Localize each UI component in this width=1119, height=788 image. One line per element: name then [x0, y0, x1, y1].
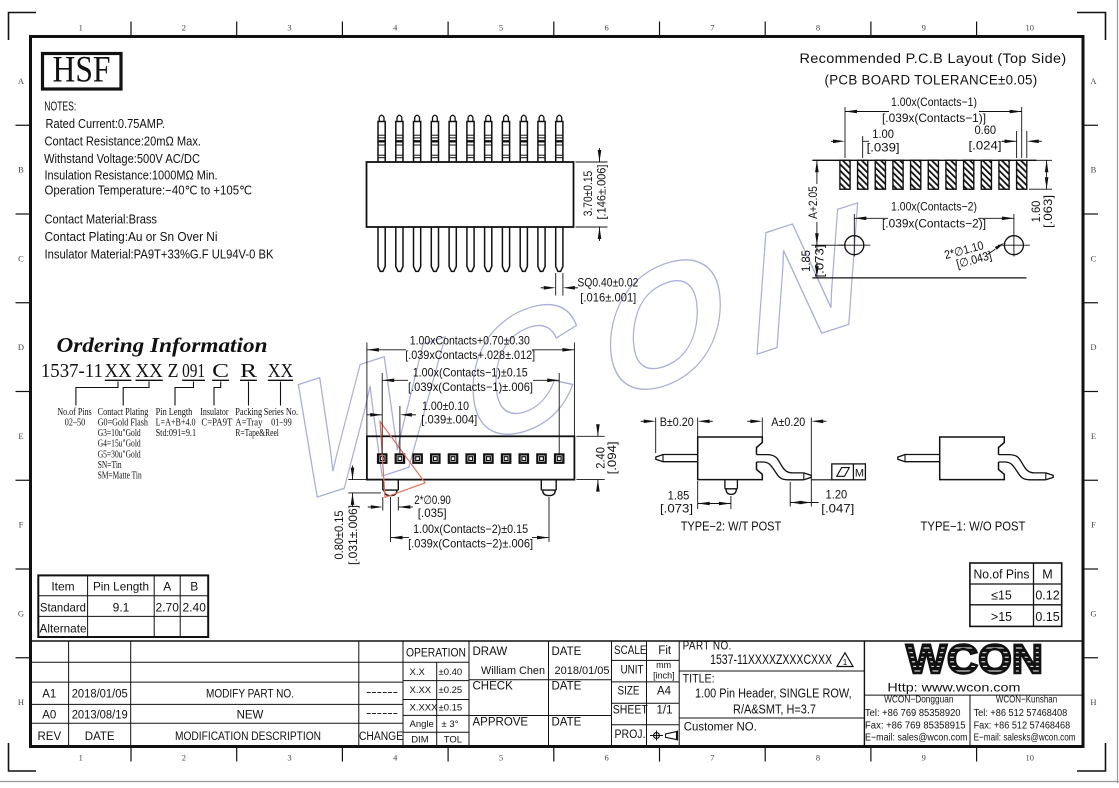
svg-text:DATE: DATE: [552, 681, 582, 693]
svg-text:2.40: 2.40: [183, 601, 207, 615]
svg-text:X.X: X.X: [410, 667, 426, 678]
svg-text:OPERATION: OPERATION: [406, 648, 466, 660]
svg-text:Contact Material:Brass: Contact Material:Brass: [45, 213, 158, 227]
svg-text:±0.40: ±0.40: [439, 667, 463, 678]
svg-text:G: G: [18, 608, 24, 618]
svg-text:Contact Plating:Au or Sn Over: Contact Plating:Au or Sn Over Ni: [45, 230, 218, 244]
svg-text:1/1: 1/1: [657, 705, 673, 717]
svg-text:R: R: [240, 360, 258, 382]
svg-text:1.00x(Contacts−1)±0.15: 1.00x(Contacts−1)±0.15: [413, 365, 528, 379]
svg-text:E: E: [18, 431, 23, 441]
svg-text:TITLE:: TITLE:: [683, 674, 715, 686]
svg-text:2018/01/05: 2018/01/05: [72, 689, 128, 701]
svg-text:H: H: [18, 697, 24, 707]
svg-text:[.039x(Contacts−2)]: [.039x(Contacts−2)]: [882, 216, 986, 230]
svg-text:6: 6: [605, 23, 609, 33]
svg-text:HSF: HSF: [53, 50, 111, 91]
svg-text:UNIT: UNIT: [621, 664, 644, 676]
svg-text:mm: mm: [656, 660, 671, 670]
svg-text:[.063]: [.063]: [1041, 195, 1055, 228]
svg-text:A+2.05: A+2.05: [806, 186, 820, 219]
svg-text:MODIFY PART NO.: MODIFY PART NO.: [206, 689, 294, 701]
svg-text:091: 091: [182, 360, 205, 382]
svg-text:Insulator Material:PA9T+33%G.F: Insulator Material:PA9T+33%G.F UL94V-0 B…: [45, 248, 275, 262]
svg-text:[.039xContacts+.028±.012]: [.039xContacts+.028±.012]: [405, 348, 535, 362]
svg-text:Alternate: Alternate: [40, 622, 87, 636]
svg-text:8: 8: [816, 753, 820, 763]
svg-text:[.073]: [.073]: [813, 245, 827, 278]
svg-text:------: ------: [366, 708, 398, 720]
svg-text:SCALE: SCALE: [614, 645, 647, 657]
svg-text:E: E: [1091, 431, 1096, 441]
svg-text:Tel: +86 769 85358920: Tel: +86 769 85358920: [865, 708, 961, 719]
svg-text:DATE: DATE: [552, 646, 582, 658]
svg-text:XX: XX: [105, 360, 132, 382]
svg-text:CHANGE: CHANGE: [359, 731, 403, 743]
svg-text:XX: XX: [268, 360, 294, 382]
svg-text:Fit: Fit: [658, 645, 672, 657]
svg-text:3: 3: [287, 753, 291, 763]
svg-text:REV: REV: [37, 731, 61, 743]
svg-text:1.00x(Contacts−2)±0.15: 1.00x(Contacts−2)±0.15: [413, 522, 528, 536]
svg-text:[.039x(Contacts−1)]: [.039x(Contacts−1)]: [882, 111, 986, 125]
svg-text:Operation Temperature:−40℃ to: Operation Temperature:−40℃ to +105℃: [45, 184, 253, 198]
svg-text:1: 1: [79, 23, 83, 33]
svg-text:10: 10: [1026, 23, 1035, 33]
svg-text:A±0.20: A±0.20: [771, 415, 805, 429]
svg-text:B: B: [18, 165, 24, 175]
svg-text:1.20: 1.20: [826, 488, 848, 502]
svg-text:Contact Resistance:20mΩ Max.: Contact Resistance:20mΩ Max.: [45, 135, 202, 149]
svg-text:[.094]: [.094]: [605, 441, 619, 474]
svg-text:NEW: NEW: [237, 710, 264, 722]
svg-text:[.031±.006]: [.031±.006]: [346, 505, 360, 565]
svg-text:M: M: [855, 467, 864, 479]
svg-text:1: 1: [79, 753, 83, 763]
svg-text:DATE: DATE: [85, 731, 115, 743]
svg-text:01–99: 01–99: [271, 416, 292, 428]
svg-text:A4: A4: [657, 685, 672, 697]
svg-text:A: A: [18, 76, 25, 86]
svg-text:2018/01/05: 2018/01/05: [555, 665, 610, 677]
svg-text:No.of Pins: No.of Pins: [974, 568, 1030, 582]
svg-text:Withstand Voltage:500V AC/DC: Withstand Voltage:500V AC/DC: [44, 152, 200, 166]
svg-text:F: F: [1091, 520, 1096, 530]
svg-text:1537-11: 1537-11: [41, 360, 103, 382]
svg-text:H: H: [1090, 697, 1096, 707]
svg-text:C=PA9T: C=PA9T: [201, 416, 232, 428]
svg-text:2: 2: [182, 23, 186, 33]
svg-text:Item: Item: [51, 580, 74, 594]
svg-text:DRAW: DRAW: [473, 646, 508, 658]
svg-text:A0: A0: [42, 710, 56, 722]
svg-text:SHEET: SHEET: [613, 704, 648, 716]
svg-text:3.70±0.15: 3.70±0.15: [581, 170, 595, 216]
svg-text:[.035]: [.035]: [418, 506, 447, 520]
svg-text:9.1: 9.1: [113, 601, 130, 615]
svg-text:2.70: 2.70: [156, 601, 180, 615]
svg-text:M: M: [1042, 568, 1052, 582]
svg-text:1: 1: [843, 657, 848, 667]
svg-text:1.85: 1.85: [668, 489, 690, 503]
svg-text:TYPE−1: W/O POST: TYPE−1: W/O POST: [921, 520, 1026, 534]
svg-text:9: 9: [922, 23, 926, 33]
svg-text:Standard: Standard: [40, 601, 86, 615]
svg-text:10: 10: [1026, 753, 1035, 763]
svg-text:William Chen: William Chen: [481, 665, 545, 677]
svg-text:SIZE: SIZE: [618, 685, 640, 697]
svg-text:7: 7: [710, 753, 714, 763]
svg-text:0.12: 0.12: [1035, 589, 1059, 603]
svg-text:[.146±.006]: [.146±.006]: [595, 165, 609, 220]
svg-text:WCON−Kunshan: WCON−Kunshan: [996, 695, 1057, 706]
svg-text:G: G: [1090, 608, 1096, 618]
svg-text:±0.15: ±0.15: [439, 703, 463, 714]
svg-text:±0.25: ±0.25: [439, 685, 463, 696]
svg-text:2: 2: [182, 753, 186, 763]
svg-text:D: D: [1090, 342, 1096, 352]
svg-text:F: F: [19, 520, 24, 530]
svg-text:3: 3: [287, 23, 291, 33]
svg-text:[.073]: [.073]: [660, 502, 693, 516]
svg-text:Ordering Information: Ordering Information: [57, 333, 268, 357]
svg-text:≤15: ≤15: [991, 589, 1012, 603]
svg-text:XX: XX: [136, 360, 164, 382]
svg-text:MODIFICATION DESCRIPTION: MODIFICATION DESCRIPTION: [175, 731, 321, 743]
svg-text:0.15: 0.15: [1035, 610, 1059, 624]
svg-text:5: 5: [499, 23, 503, 33]
svg-text:Angle: Angle: [410, 719, 434, 730]
svg-text:NOTES:: NOTES:: [44, 100, 76, 114]
svg-text:E−mail: sales@wcon.com: E−mail: sales@wcon.com: [865, 732, 968, 743]
svg-text:Pin Length: Pin Length: [93, 580, 149, 594]
svg-text:R/A&SMT, H=3.7: R/A&SMT, H=3.7: [733, 702, 816, 717]
svg-text:A: A: [1090, 76, 1097, 86]
svg-text:WCON−Dongguan: WCON−Dongguan: [884, 695, 953, 706]
svg-text:02–50: 02–50: [65, 416, 86, 428]
svg-text:CHECK: CHECK: [473, 681, 514, 693]
svg-text:1537-11XXXXZXXXCXXX: 1537-11XXXXZXXXCXXX: [710, 651, 832, 667]
svg-text:------: ------: [366, 687, 398, 699]
svg-text:Fax: +86 512 57468468: Fax: +86 512 57468468: [974, 721, 1071, 732]
svg-text:TOL: TOL: [444, 734, 462, 745]
svg-text:1.00x(Contacts−1): 1.00x(Contacts−1): [891, 95, 977, 109]
svg-text:± 3°: ± 3°: [442, 719, 459, 730]
svg-text:Recommended P.C.B Layout (Top: Recommended P.C.B Layout (Top Side): [800, 51, 1067, 66]
svg-text:TYPE−2: W/T POST: TYPE−2: W/T POST: [681, 520, 782, 534]
svg-text:SM=Matte Tin: SM=Matte Tin: [98, 470, 142, 482]
svg-text:(PCB BOARD TOLERANCE±0.05): (PCB BOARD TOLERANCE±0.05): [825, 73, 1038, 88]
svg-text:Std:091=9.1: Std:091=9.1: [156, 427, 197, 439]
svg-text:DIM: DIM: [411, 734, 429, 745]
svg-text:C: C: [18, 253, 24, 263]
svg-text:[.047]: [.047]: [821, 502, 854, 516]
svg-text:Rated Current:0.75AMP.: Rated Current:0.75AMP.: [46, 117, 166, 131]
svg-text:Customer NO.: Customer NO.: [684, 721, 757, 733]
svg-text:APPROVE: APPROVE: [473, 716, 529, 728]
svg-text:1.00 Pin Header, SINGLE ROW,: 1.00 Pin Header, SINGLE ROW,: [695, 686, 852, 701]
svg-text:[inch]: [inch]: [653, 671, 675, 681]
svg-text:6: 6: [605, 753, 609, 763]
svg-text:Fax: +86 769 85358915: Fax: +86 769 85358915: [865, 721, 966, 732]
svg-text:C: C: [212, 360, 229, 382]
svg-text:A1: A1: [42, 689, 56, 701]
svg-text:B: B: [1091, 165, 1097, 175]
svg-text:DATE: DATE: [552, 716, 582, 728]
svg-text:1.00x(Contacts−2): 1.00x(Contacts−2): [891, 199, 977, 213]
svg-text:B: B: [190, 580, 198, 594]
svg-text:SQ0.40±0.02: SQ0.40±0.02: [577, 275, 638, 289]
svg-text:8: 8: [816, 23, 820, 33]
svg-text:WCON: WCON: [906, 636, 1043, 682]
svg-text:[.039±.004]: [.039±.004]: [421, 413, 477, 427]
svg-text:1.00: 1.00: [872, 127, 894, 141]
svg-text:B±0.20: B±0.20: [660, 415, 694, 429]
svg-text:[.039x(Contacts−2)±.006]: [.039x(Contacts−2)±.006]: [408, 537, 533, 551]
svg-text:9: 9: [922, 753, 926, 763]
svg-text:1.00xContacts+0.70±0.30: 1.00xContacts+0.70±0.30: [410, 333, 530, 347]
svg-text:Z: Z: [168, 360, 179, 382]
svg-text:1.00±0.10: 1.00±0.10: [422, 399, 469, 413]
svg-text:5: 5: [499, 753, 503, 763]
svg-text:X.XX: X.XX: [410, 685, 432, 696]
svg-text:[.039x(Contacts−1)±.006]: [.039x(Contacts−1)±.006]: [408, 380, 533, 394]
svg-text:A: A: [163, 580, 171, 594]
svg-text:Tel: +86 512 57468408: Tel: +86 512 57468408: [974, 708, 1068, 719]
svg-text:1.85: 1.85: [799, 250, 813, 272]
svg-text:0.60: 0.60: [974, 123, 996, 137]
svg-text:[.016±.001]: [.016±.001]: [580, 290, 636, 304]
svg-text:[.039]: [.039]: [867, 140, 900, 154]
svg-text:7: 7: [710, 23, 714, 33]
svg-text:X.XXX: X.XXX: [410, 703, 439, 714]
svg-text:D: D: [18, 342, 24, 352]
svg-text:>15: >15: [991, 610, 1012, 624]
svg-text:E−mail: salesks@wcon.com: E−mail: salesks@wcon.com: [974, 732, 1076, 743]
svg-text:Insulation Resistance:1000MΩ M: Insulation Resistance:1000MΩ Min.: [45, 169, 218, 183]
svg-text:C: C: [1091, 253, 1097, 263]
svg-text:0.80±0.15: 0.80±0.15: [332, 510, 346, 559]
svg-text:R=Tape&Reel: R=Tape&Reel: [235, 427, 279, 439]
svg-text:Http: www.wcon.com: Http: www.wcon.com: [887, 680, 1020, 694]
svg-text:2*∅0.90: 2*∅0.90: [414, 493, 451, 507]
svg-text:PROJ.: PROJ.: [615, 729, 646, 741]
svg-text:2013/08/19: 2013/08/19: [72, 710, 128, 722]
svg-text:[.024]: [.024]: [969, 138, 1002, 152]
